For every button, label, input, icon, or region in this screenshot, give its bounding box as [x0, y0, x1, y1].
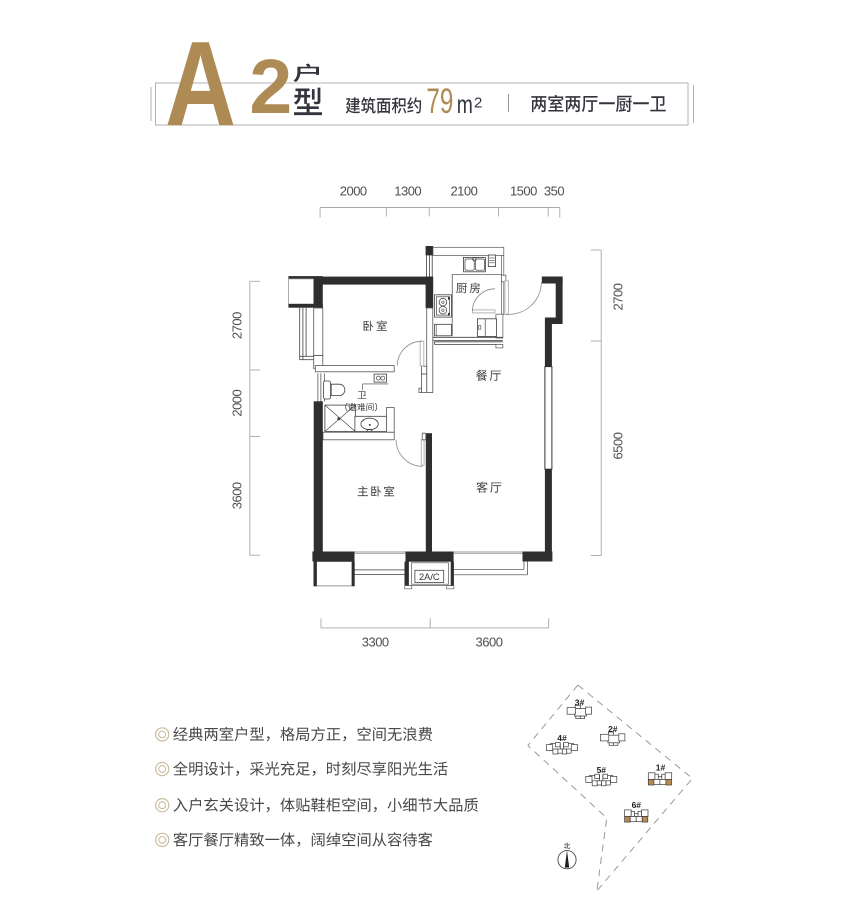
svg-text:2700: 2700 [230, 312, 245, 339]
svg-text:2A/C: 2A/C [419, 572, 440, 582]
svg-text:2: 2 [474, 95, 482, 112]
svg-text:350: 350 [544, 184, 564, 199]
svg-text:5#: 5# [597, 765, 607, 775]
svg-text:3300: 3300 [362, 635, 389, 650]
svg-text:1#: 1# [656, 763, 666, 773]
svg-text:2#: 2# [608, 724, 618, 734]
svg-text:2100: 2100 [450, 184, 477, 199]
svg-text:4#: 4# [557, 733, 567, 743]
svg-text:m: m [457, 91, 473, 119]
svg-text:1500: 1500 [510, 184, 537, 199]
svg-text:2000: 2000 [230, 389, 245, 416]
svg-text:3#: 3# [575, 697, 585, 707]
svg-text:6#: 6# [632, 800, 642, 810]
svg-text:2: 2 [249, 44, 292, 130]
svg-text:3600: 3600 [230, 482, 245, 509]
svg-text:1300: 1300 [394, 184, 421, 199]
svg-text:3600: 3600 [476, 635, 503, 650]
svg-text:2700: 2700 [610, 283, 625, 310]
svg-text:6500: 6500 [610, 432, 625, 459]
svg-text:79: 79 [426, 83, 453, 121]
svg-text:2000: 2000 [340, 184, 367, 199]
svg-text:A: A [165, 16, 236, 151]
